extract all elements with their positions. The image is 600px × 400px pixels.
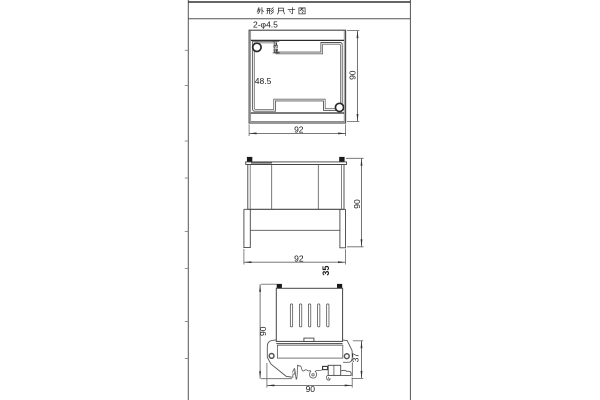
svg-text:90: 90 xyxy=(306,384,316,394)
svg-text:48.5: 48.5 xyxy=(255,76,272,86)
svg-text:92: 92 xyxy=(294,124,304,134)
svg-text:90: 90 xyxy=(258,326,268,336)
svg-text:92: 92 xyxy=(294,253,304,263)
svg-text:35: 35 xyxy=(321,266,331,276)
svg-text:13: 13 xyxy=(273,44,280,52)
svg-text:90: 90 xyxy=(352,199,362,209)
svg-text:2-φ4.5: 2-φ4.5 xyxy=(253,19,278,29)
svg-text:90: 90 xyxy=(348,70,358,80)
svg-text:37: 37 xyxy=(351,353,361,363)
